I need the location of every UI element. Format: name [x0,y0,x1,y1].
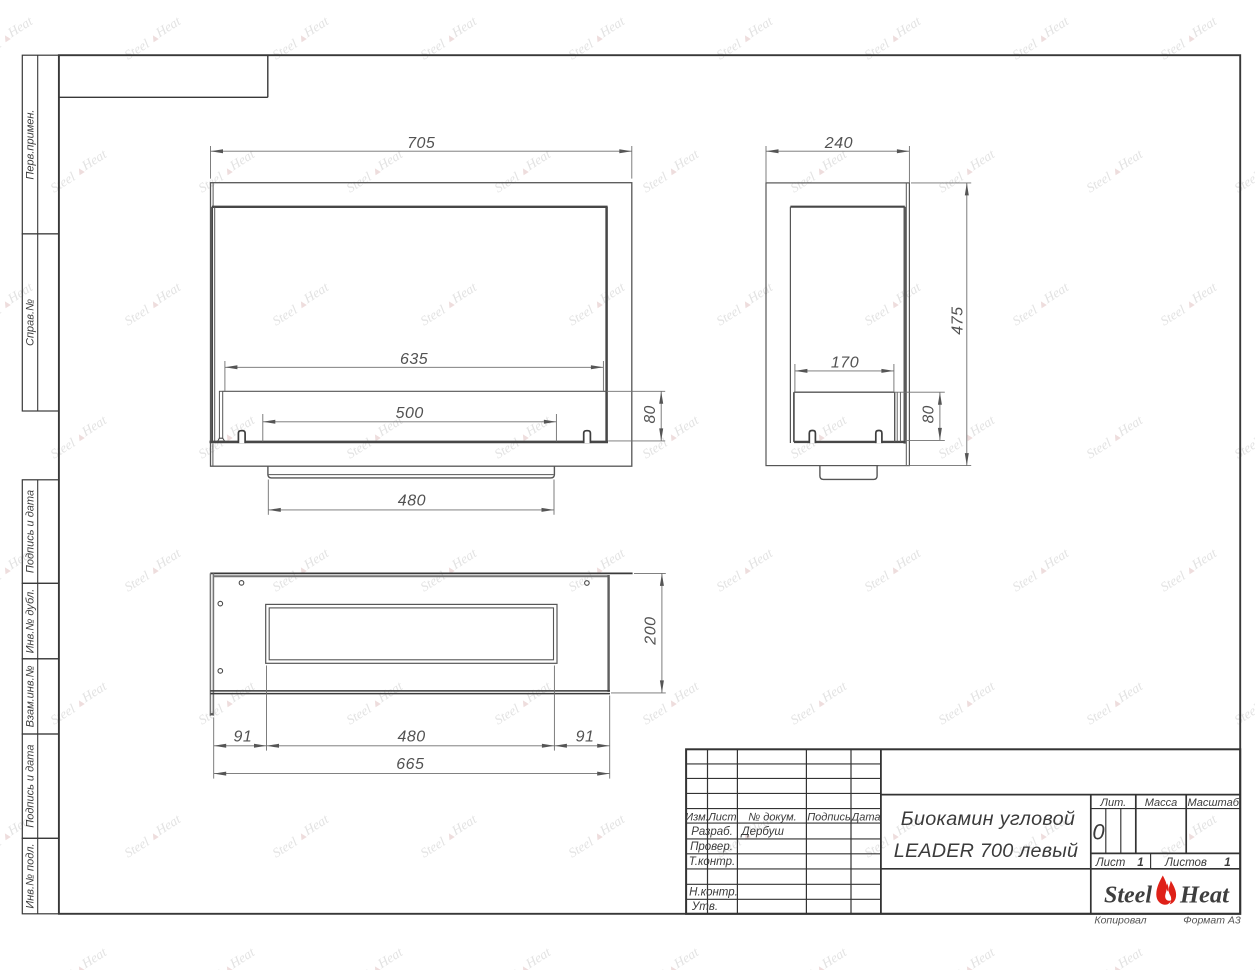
svg-text:0: 0 [1092,820,1105,845]
svg-text:Утв.: Утв. [691,901,718,913]
svg-text:Масса: Масса [1145,797,1178,809]
svg-text:Справ.№: Справ.№ [25,299,37,346]
svg-text:635: 635 [400,351,428,368]
svg-text:Лист: Лист [1095,857,1126,869]
svg-text:№ докум.: № докум. [748,812,796,824]
svg-text:LEADER 700 левый: LEADER 700 левый [894,840,1078,862]
svg-text:Инв.№ дубл.: Инв.№ дубл. [25,589,37,654]
svg-text:240: 240 [824,135,853,152]
svg-text:80: 80 [642,405,659,423]
svg-text:Формат А3: Формат А3 [1183,915,1241,927]
svg-text:Т.контр.: Т.контр. [689,856,735,868]
svg-text:475: 475 [950,306,967,334]
svg-text:705: 705 [407,135,435,152]
svg-text:Лит.: Лит. [1099,797,1126,809]
svg-text:Подпись: Подпись [807,812,851,824]
svg-text:Разраб.: Разраб. [691,826,733,838]
svg-text:91: 91 [234,728,253,745]
svg-text:Листов: Листов [1164,857,1207,869]
svg-text:500: 500 [396,405,424,422]
svg-text:Подпись и дата: Подпись и дата [25,745,37,828]
svg-text:Лист: Лист [707,812,736,824]
svg-text:480: 480 [398,492,426,509]
svg-text:Перв.примен.: Перв.примен. [25,110,37,180]
svg-text:Биокамин угловой: Биокамин угловой [901,808,1075,830]
svg-text:Копировал: Копировал [1094,915,1146,927]
svg-text:Масштаб: Масштаб [1188,797,1240,809]
svg-text:Дербуш: Дербуш [740,826,785,838]
svg-text:Провер.: Провер. [690,841,733,853]
svg-text:1: 1 [1137,857,1143,869]
svg-text:Инв.№ подл.: Инв.№ подл. [25,843,37,908]
svg-text:Дата: Дата [849,812,880,824]
svg-text:Heat: Heat [1179,882,1230,909]
svg-text:91: 91 [576,728,595,745]
svg-text:480: 480 [397,728,425,745]
svg-text:200: 200 [642,616,659,645]
svg-text:1: 1 [1224,857,1230,869]
svg-text:Взам.инв.№: Взам.инв.№ [25,665,37,727]
svg-text:Подпись и дата: Подпись и дата [25,490,37,573]
svg-text:Н.контр.: Н.контр. [689,887,738,899]
svg-text:170: 170 [831,354,859,371]
svg-text:Steel: Steel [1104,883,1152,909]
svg-text:80: 80 [920,405,937,423]
svg-text:665: 665 [396,756,424,773]
svg-text:Изм.: Изм. [685,812,708,824]
